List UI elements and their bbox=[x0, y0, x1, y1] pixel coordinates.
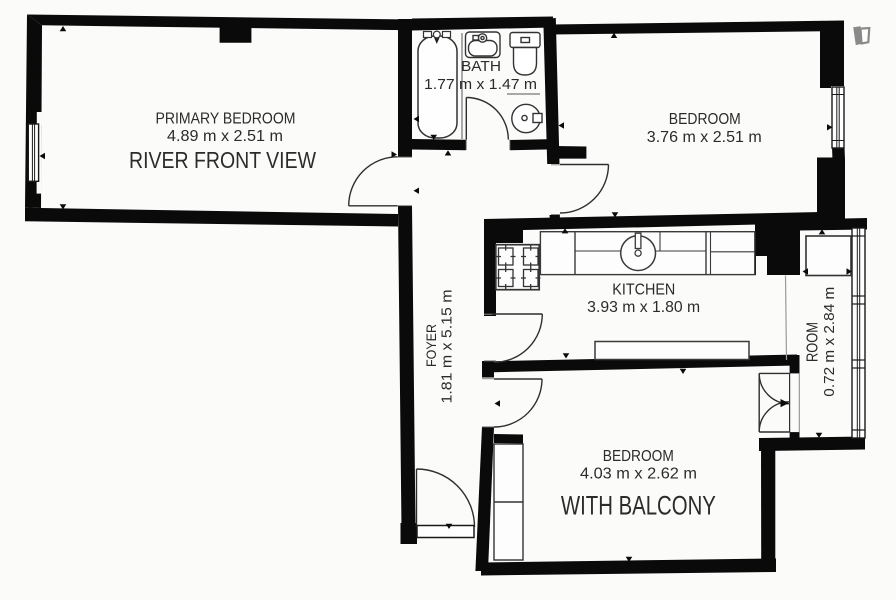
svg-text:3.93 m x 1.80 m: 3.93 m x 1.80 m bbox=[587, 299, 700, 316]
svg-text:3.76 m x 2.51 m: 3.76 m x 2.51 m bbox=[647, 129, 762, 146]
svg-text:1.81 m x 5.15 m: 1.81 m x 5.15 m bbox=[439, 290, 456, 404]
svg-text:RIVER FRONT VIEW: RIVER FRONT VIEW bbox=[129, 147, 316, 173]
svg-text:4.89 m x 2.51 m: 4.89 m x 2.51 m bbox=[167, 128, 283, 145]
svg-text:ROOM: ROOM bbox=[805, 322, 822, 362]
svg-text:PRIMARY BEDROOM: PRIMARY BEDROOM bbox=[156, 111, 296, 128]
svg-text:BEDROOM: BEDROOM bbox=[669, 111, 741, 128]
svg-text:FOYER: FOYER bbox=[424, 324, 439, 367]
svg-text:BEDROOM: BEDROOM bbox=[603, 448, 674, 465]
svg-text:1.77 m x 1.47 m: 1.77 m x 1.47 m bbox=[424, 76, 537, 93]
svg-text:WITH BALCONY: WITH BALCONY bbox=[561, 491, 716, 521]
svg-text:4.03 m x 2.62 m: 4.03 m x 2.62 m bbox=[580, 466, 697, 483]
svg-text:KITCHEN: KITCHEN bbox=[612, 282, 675, 299]
svg-text:BATH: BATH bbox=[461, 58, 501, 75]
svg-text:0.72 m x 2.84 m: 0.72 m x 2.84 m bbox=[821, 287, 838, 397]
